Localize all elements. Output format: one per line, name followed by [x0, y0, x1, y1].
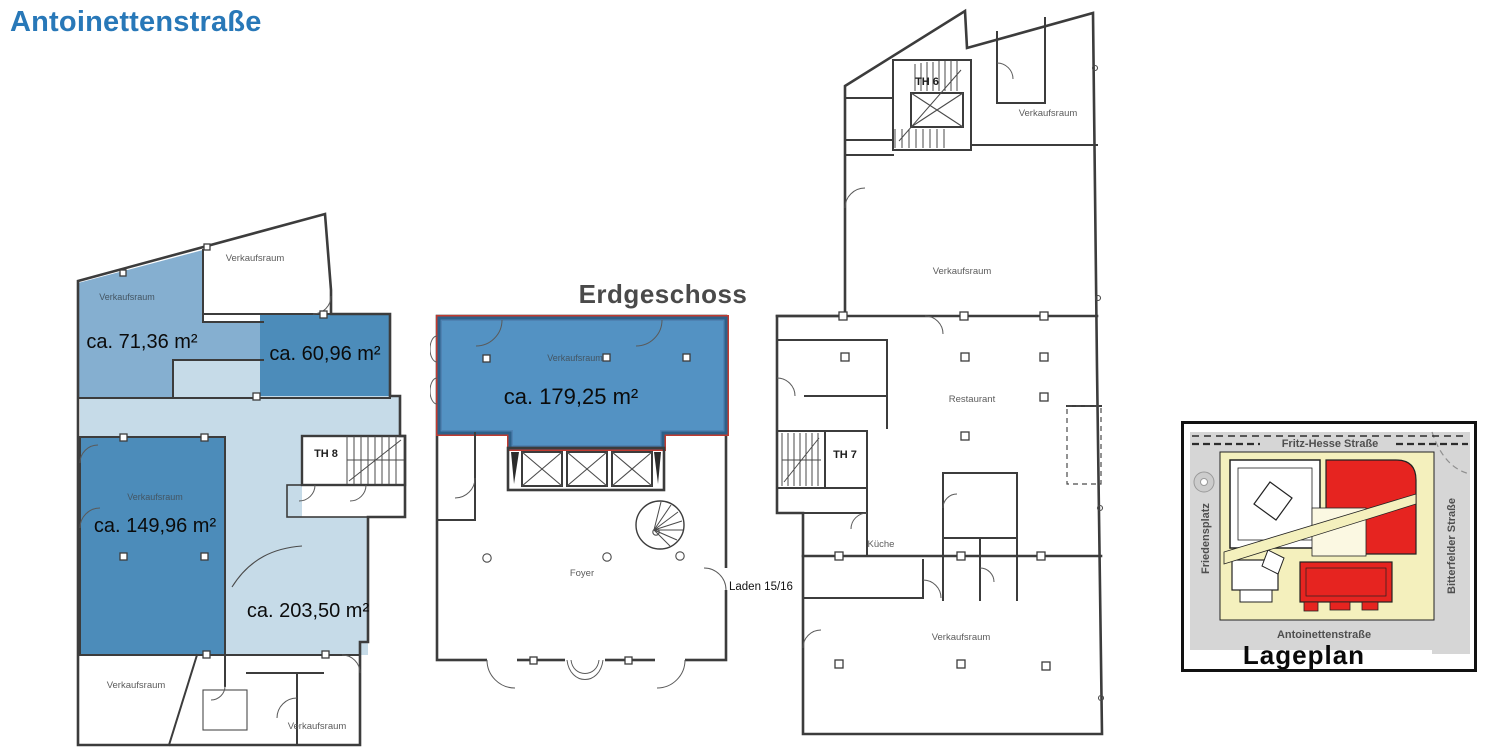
area-label-71: ca. 71,36 m²	[86, 331, 198, 353]
stairwell-th7-label: TH 7	[833, 449, 857, 461]
area-label-179: ca. 179,25 m²	[504, 384, 639, 409]
room-label-shop: Verkaufsraum	[547, 353, 603, 363]
stair-lobby	[287, 485, 405, 517]
floor-plan-middle: Erdgeschoss	[430, 278, 800, 751]
right-plan-walls	[777, 11, 1104, 734]
elevator-bank	[508, 448, 664, 490]
stairwell-th6-label: TH 6	[915, 76, 939, 88]
room-label-right-mid: Verkaufsraum	[933, 266, 992, 277]
floor-plan-left: Verkaufsraum Verkaufsraum ca. 71,36 m² c…	[70, 208, 425, 751]
area-label-60: ca. 60,96 m²	[269, 343, 381, 365]
room-label-right-top: Verkaufsraum	[1019, 108, 1078, 119]
street-label-left: Friedensplatz	[1200, 503, 1212, 574]
kitchen-label: Küche	[868, 539, 895, 550]
room-label-right-bottom: Verkaufsraum	[932, 632, 991, 643]
street-label-right: Bitterfelder Straße	[1446, 498, 1458, 594]
room-label-mid: Verkaufsraum	[127, 492, 183, 502]
area-label-203: ca. 203,50 m²	[247, 600, 370, 622]
foyer-label: Foyer	[570, 568, 594, 579]
area-label-149: ca. 149,96 m²	[94, 515, 217, 537]
room-label-top-left: Verkaufsraum	[99, 292, 155, 302]
highlight-area-149	[80, 437, 225, 655]
room-label-top-right: Verkaufsraum	[226, 253, 285, 264]
spiral-staircase	[636, 501, 684, 549]
stairwell-th8	[302, 436, 405, 485]
page-title: Antoinettenstraße	[10, 6, 262, 39]
lageplan-map: Fritz-Hesse Straße Friedensplatz Bitterf…	[1184, 424, 1474, 669]
street-label-top: Fritz-Hesse Straße	[1282, 438, 1379, 450]
room-label-bottom-right: Verkaufsraum	[288, 721, 347, 732]
highlight-shop-179	[439, 318, 726, 448]
floor-heading: Erdgeschoss	[579, 279, 748, 309]
stairwell-th6	[895, 60, 963, 148]
room-label-bottom-left: Verkaufsraum	[107, 680, 166, 691]
restaurant-label: Restaurant	[949, 394, 996, 405]
lageplan-inset: Fritz-Hesse Straße Friedensplatz Bitterf…	[1181, 421, 1477, 672]
page: Antoinettenstraße	[0, 0, 1485, 751]
stairwell-th8-label: TH 8	[314, 448, 338, 460]
lageplan-title: Lageplan	[1243, 640, 1365, 669]
floor-plan-right: TH 6 Verkaufsraum Verkaufsraum Restauran…	[775, 8, 1115, 748]
lageplan-block	[1220, 452, 1434, 620]
